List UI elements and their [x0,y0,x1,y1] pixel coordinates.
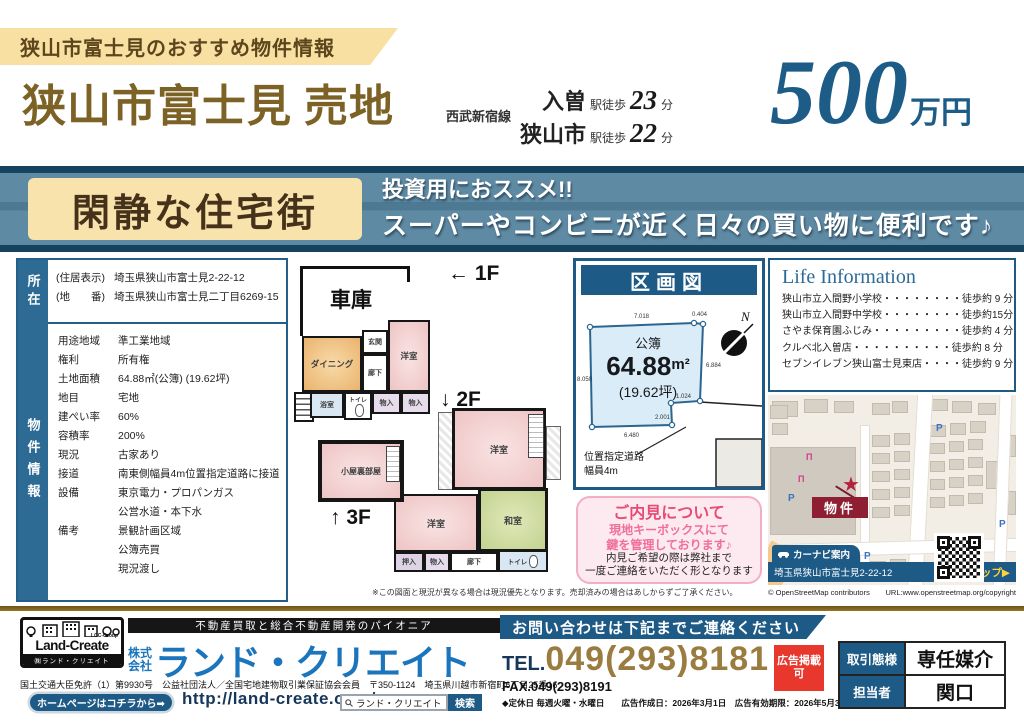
info-side-label: 物件情報 [18,324,48,600]
qr-finder [937,566,950,579]
map-building [968,493,983,504]
viewing-line2: 鍵を管理しております♪ [578,538,760,553]
info-key: 接道 [58,465,118,484]
toilet-icon [355,404,364,417]
company-logo: LCC-Group Land-Create ㈱ランド・クリエイト [20,617,124,668]
map-building [872,453,890,464]
area-unit: m² [671,356,689,373]
tagline-bar: 不動産買取と総合不動産開発のパイオニア [128,618,500,633]
info-key [58,560,118,579]
map-building [968,475,983,486]
facility-name: 狭山市立入間野中学校 [782,310,882,321]
parking-p: P [788,493,795,504]
info-key [58,541,118,560]
lot-diagram-box: 区画図 7.018 0.404 6.884 8.050 1.024 2.001 … [573,258,765,490]
room-bath: 浴室 [310,392,344,418]
dots: ・・・・・・・・・・ [852,343,952,354]
company-prefix: 株式 会社 [128,647,152,673]
osm-url: URL:www.openstreetmap.org/copyright [886,588,1016,597]
area-sqm: 64.88 [606,351,671,381]
map-building [949,441,964,452]
map-building [978,403,996,415]
map-building [894,487,910,498]
walk-label: 駅徒歩 [590,129,626,146]
catch-line1: 投資用におススメ!! [382,172,573,204]
info-key [58,503,118,522]
viewing-line4: 一度ご連絡をいただく形となります [578,565,760,578]
info-value: 現況渡し [118,560,160,579]
map-building [949,495,964,506]
compass-tail [744,324,753,333]
info-value: 64.88㎡(公簿) (19.62坪) [118,370,229,389]
life-item: 狭山市立入間野中学校・・・・・・・・徒歩約15分 [782,308,1004,324]
info-value: 宅地 [118,389,139,408]
homepage-button[interactable]: ホームページはコチラから➡ [30,694,172,711]
garage-wall [407,266,410,282]
room-storage2: 物入 [401,392,430,414]
lot-area-label: 公簿 64.88m² (19.62坪) [590,333,706,402]
viewing-line3: 内見ご希望の際は弊社まで [578,552,760,565]
garage-wall [300,266,303,336]
closet-3f [386,446,400,482]
walk-label: 駅徒歩 [590,96,626,113]
ad-badge: 広告掲載 可 [774,645,824,691]
info-value: 公営水道・本下水 [118,503,202,522]
plan-disclaimer: ※この図面と現況が異なる場合は現況優先となります。売却済みの場合はあしからずご了… [372,587,738,598]
dots: ・・・・・・・・ [882,310,962,321]
shop-icon: Π [806,453,813,462]
address-key: (住居表示) [56,269,114,288]
room-storage1: 物入 [372,392,401,414]
location-map: Π Π P P P P ★ 物件 カーナビ案内 埼玉県狭山市富士見2-22-12… [768,395,1016,585]
prefix-kaisha: 会社 [128,660,152,673]
navi-address: 埼玉県狭山市富士見2-22-12 [774,565,892,579]
car-icon [777,550,790,558]
deal-type-value: 専任媒介 [905,642,1005,675]
address-key: (地 番) [56,288,114,307]
room-western1: 洋室 [388,320,430,392]
price-unit: 万円 [910,87,972,132]
ad-badge-line2: 可 [794,668,805,681]
walk-unit: 分 [661,96,673,113]
room-oshiire: 押入 [394,552,424,572]
logo-name: Land-Create [23,638,121,653]
info-key: 用途地域 [58,332,118,351]
life-info-title: Life Information [782,266,1004,289]
walk-time: 徒歩約 9 分 [962,359,1013,370]
balcony-right [546,426,561,480]
search-button[interactable]: 検索 [448,694,482,711]
vertex [669,422,674,427]
map-building [894,451,910,462]
info-key: 権利 [58,351,118,370]
room-dining: ダイニング [302,336,362,392]
footer-divider [0,606,1024,611]
life-item: さやま保育園ふじみ・・・・・・・・・徒歩約 4 分 [782,324,1004,340]
dim-notch-h: 2.001 [655,415,671,421]
walk-time: 徒歩約15分 [962,310,1013,321]
info-key: 設備 [58,484,118,503]
toilet-label: トイレ [508,556,528,566]
walk-time: 徒歩約 9 分 [962,294,1013,305]
map-building [949,459,964,470]
property-side-labels: 所在 物件情報 [18,260,48,600]
map-building [930,497,945,508]
info-value: 所有権 [118,351,150,370]
walk-time: 徒歩約 4 分 [962,326,1013,337]
map-building [770,405,788,419]
walk-time: 徒歩約 8 分 [952,343,1003,354]
vertex [587,324,592,329]
dim-top: 7.018 [634,314,650,320]
ribbon-banner: 狭山市富士見のおすすめ物件情報 [0,28,398,65]
life-item: クルベ北入曽店・・・・・・・・・・徒歩約 8 分 [782,341,1004,357]
qr-finder [937,536,950,549]
fax-number: FAX.049(293)8191 [502,679,612,694]
map-building [970,421,986,433]
map-building [894,469,910,480]
vertex [589,424,594,429]
parking-p: P [864,551,871,562]
tel-number: 049(293)8181 [545,640,769,679]
area-tsubo: (19.62坪) [590,382,706,402]
flyer-page: 狭山市富士見のおすすめ物件情報 狭山市富士見 売地 西武新宿線 入曽 駅徒歩 2… [0,0,1024,724]
parking-p: P [999,519,1006,530]
lot-title: 区画図 [581,265,757,295]
info-key: 建ぺい率 [58,408,118,427]
price-number: 500 [770,46,908,138]
map-building [894,505,910,516]
info-value: 60% [118,408,139,427]
room-western3: 洋室 [394,494,478,552]
map-building [772,423,788,435]
dots: ・・・・・・・・ [882,294,962,305]
viewing-box: ご内見について 現地キーボックスにて 鍵を管理しております♪ 内見ご希望の際は弊… [576,496,762,584]
map-building [872,403,890,415]
rail-line-name: 西武新宿線 [446,106,511,125]
map-building [930,479,945,490]
map-road [992,395,1012,585]
vertex [691,320,696,325]
viewing-title: ご内見について [578,505,760,523]
facility-name: クルベ北入曽店 [782,343,852,354]
map-building [892,401,908,413]
room-hallway2: 廊下 [450,552,498,572]
catch-badge: 閑静な住宅街 [28,178,362,240]
info-key: 土地面積 [58,370,118,389]
deal-type-label: 取引態様 [839,642,905,675]
property-content: (住居表示) 埼玉県狭山市富士見2-22-12 (地 番) 埼玉県狭山市富士見二… [48,260,286,600]
map-building [1008,491,1016,515]
search-box[interactable]: ランド・クリエイト [340,694,448,711]
info-section: 用途地域準工業地域 権利所有権 土地面積64.88㎡(公簿) (19.62坪) … [48,324,286,600]
info-key: 容積率 [58,427,118,446]
qr-code [934,533,984,582]
page-title: 狭山市富士見 売地 [22,70,394,134]
map-building [950,423,966,435]
search-input[interactable]: ランド・クリエイト [356,696,442,710]
life-info-box: Life Information 狭山市立入間野小学校・・・・・・・・徒歩約 9… [768,258,1016,392]
station-name: 狭山市 [516,117,586,149]
facility-name: さやま保育園ふじみ [782,326,872,337]
register-label: 公簿 [590,333,706,352]
viewing-line1: 現地キーボックスにて [578,523,760,538]
map-building [834,401,854,413]
facility-name: 狭山市立入間野小学校 [782,294,882,305]
navi-label: カーナビ案内 [793,547,850,561]
dim-bottom: 6.480 [624,433,640,439]
location-section: (住居表示) 埼玉県狭山市富士見2-22-12 (地 番) 埼玉県狭山市富士見二… [48,260,286,324]
agent-label: 担当者 [839,675,905,708]
address-row: (住居表示) 埼玉県狭山市富士見2-22-12 [56,269,280,288]
catch-line2: スーパーやコンビニが近く日々の買い物に便利です♪ [382,206,993,242]
map-building [894,433,910,445]
walk-unit: 分 [661,129,673,146]
floor3-arrow: ↑ 3F [330,506,371,530]
map-building [872,507,890,518]
garage-label: 車庫 [330,284,372,314]
road-edge [700,402,762,406]
holiday-note: ◆定休日 毎週火曜・水曜日 広告作成日：2026年3月1日 広告有効期限：202… [502,697,853,709]
price: 500 万円 [770,46,972,138]
search-icon [345,699,353,707]
walk-minutes: 23 [630,85,657,116]
room-toilet2: トイレ [498,550,548,572]
floor1-arrow: ← 1F [448,262,499,286]
room-storage3: 物入 [424,552,450,572]
road-note-2: 幅員4m [584,464,618,477]
map-road [907,395,934,585]
dim-top2: 0.404 [692,312,708,318]
dots: ・・・・・・・・・ [872,326,962,337]
walk-minutes: 22 [630,118,657,149]
room-hallway: 廊下 [362,354,388,392]
location-side-label: 所在 [18,260,48,324]
deal-row: 取引態様 専任媒介 [839,642,1005,675]
deal-table: 取引態様 専任媒介 担当者 関口 [838,641,1006,709]
shop-icon: Π [798,475,805,484]
tel-row: TEL. 049(293)8181 [502,640,769,679]
navi-tab: カーナビ案内 [772,545,860,562]
facility-name: セブンイレブン狭山富士見東店 [782,359,922,370]
info-value: 古家あり [118,446,160,465]
road-note-1: 位置指定道路 [584,450,644,463]
osm-credit: © OpenStreetMap contributors [768,588,870,597]
garage-wall [300,266,410,269]
agent-value: 関口 [905,675,1005,708]
closet-2f [528,414,544,458]
qr-finder [968,536,981,549]
map-building [872,489,890,500]
compass-n: N [740,309,751,324]
ad-badge-line1: 広告掲載 [777,655,821,668]
room-entrance: 玄関 [362,330,388,354]
tel-label: TEL. [502,653,545,676]
room-japanese: 和室 [478,488,548,552]
address-value: 埼玉県狭山市富士見2-22-12 [114,269,245,288]
info-value: 公簿売買 [118,541,160,560]
map-building [968,457,983,468]
station-row: 入曽 駅徒歩 23 分 [516,84,673,116]
dots: ・・・・ [922,359,962,370]
logo-subtitle: ㈱ランド・クリエイト [23,654,121,665]
property-marker-label[interactable]: 物件 [812,497,868,518]
info-value: 東京電力・プロパンガス [118,484,234,503]
info-key: 現況 [58,446,118,465]
map-building [872,435,890,447]
station-name: 入曽 [516,84,586,116]
info-value: 景観計画区域 [118,522,181,541]
toilet-icon [529,555,538,568]
map-building [872,471,890,482]
map-building [930,461,945,472]
map-building [949,477,964,488]
life-item: セブンイレブン狭山富士見東店・・・・徒歩約 9 分 [782,357,1004,373]
life-item: 狭山市立入間野小学校・・・・・・・・徒歩約 9 分 [782,292,1004,308]
dim-right: 6.884 [706,363,722,369]
info-key: 地目 [58,389,118,408]
map-building [968,439,983,450]
address-value: 埼玉県狭山市富士見二丁目6269-15 [114,288,279,307]
vertex [700,321,705,326]
map-building [952,401,972,413]
contact-banner: お問い合わせは下記までご連絡ください [500,615,826,639]
parking-p: P [936,423,943,434]
info-value: 準工業地域 [118,332,171,351]
deal-row: 担当者 関口 [839,675,1005,708]
map-attribution: © OpenStreetMap contributors URL:www.ope… [768,588,1016,597]
info-value: 南東側幅員4m位置指定道路に接道 [118,465,280,484]
neighbor-block [716,439,762,487]
station-row: 狭山市 駅徒歩 22 分 [516,117,673,149]
info-value: 200% [118,427,145,446]
ribbon-text: 狭山市富士見のおすすめ物件情報 [20,32,335,61]
map-building [804,399,828,413]
map-building [930,443,945,454]
road-leader-line [636,427,686,455]
info-key: 備考 [58,522,118,541]
property-table: 所在 物件情報 (住居表示) 埼玉県狭山市富士見2-22-12 (地 番) 埼玉… [16,258,288,602]
address-row: (地 番) 埼玉県狭山市富士見二丁目6269-15 [56,288,280,307]
toilet-label: トイレ [349,395,367,404]
room-toilet1: トイレ [344,392,372,420]
